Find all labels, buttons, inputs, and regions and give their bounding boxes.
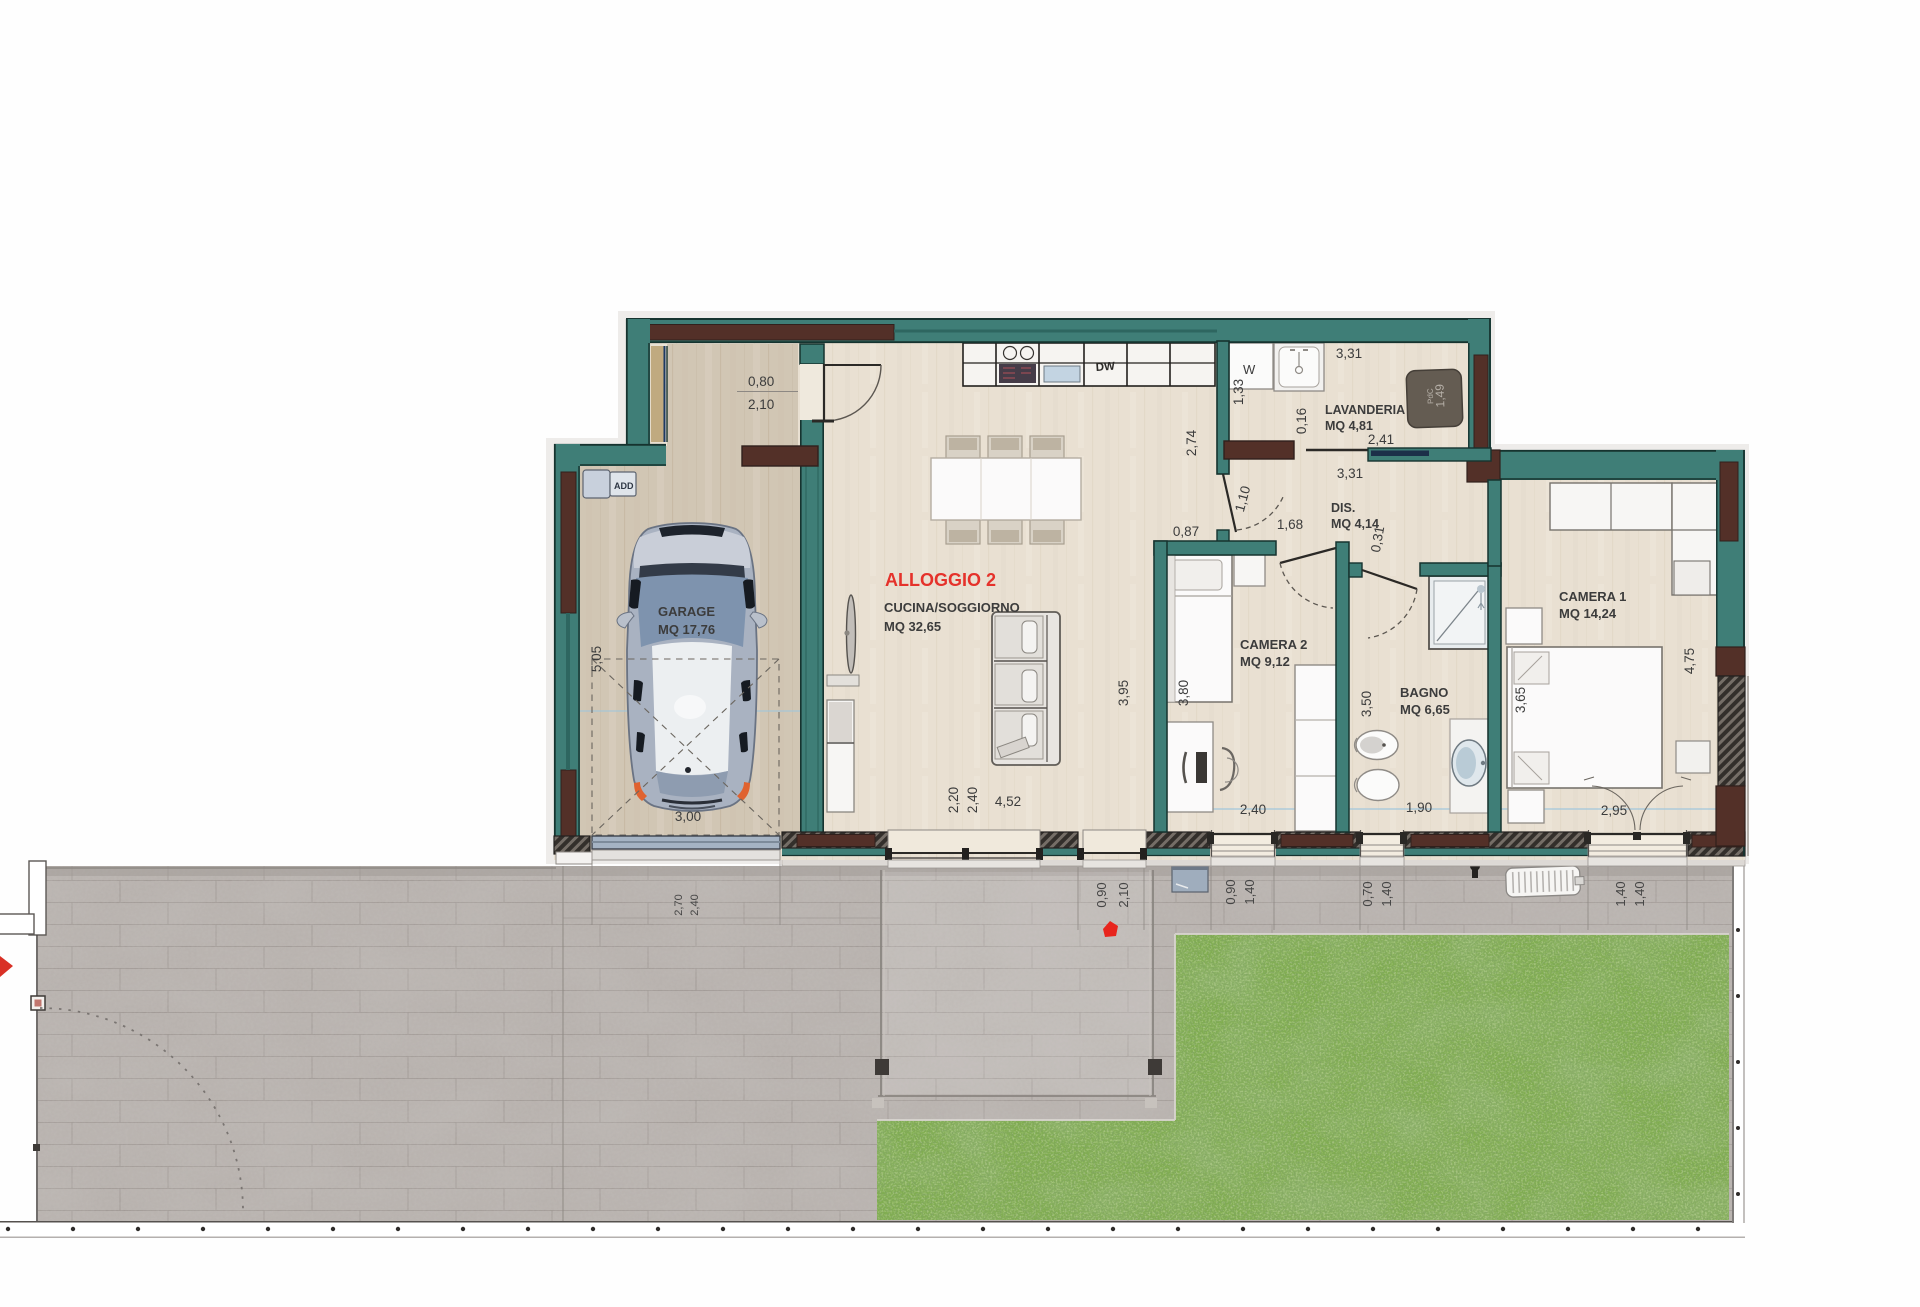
svg-text:0,90: 0,90 (1223, 879, 1238, 904)
svg-text:LAVANDERIA: LAVANDERIA (1325, 403, 1405, 417)
svg-text:MQ 6,65: MQ 6,65 (1400, 702, 1450, 717)
svg-text:0,90: 0,90 (1094, 882, 1109, 907)
svg-text:GARAGE: GARAGE (658, 604, 715, 619)
svg-text:CAMERA 1: CAMERA 1 (1559, 589, 1626, 604)
svg-text:3,31: 3,31 (1337, 466, 1363, 481)
svg-text:1,49: 1,49 (1433, 384, 1448, 408)
svg-text:3,95: 3,95 (1116, 680, 1131, 706)
svg-text:2,40: 2,40 (1240, 802, 1266, 817)
svg-text:2,95: 2,95 (1601, 803, 1627, 818)
svg-text:0,16: 0,16 (1294, 408, 1309, 434)
svg-text:2,40: 2,40 (965, 787, 980, 813)
svg-text:5,05: 5,05 (589, 646, 604, 672)
svg-text:1,33: 1,33 (1231, 379, 1246, 405)
svg-text:MQ 32,65: MQ 32,65 (884, 619, 941, 634)
svg-text:MQ 4,81: MQ 4,81 (1325, 419, 1373, 433)
svg-text:CUCINA/SOGGIORNO: CUCINA/SOGGIORNO (884, 600, 1020, 615)
svg-text:2,74: 2,74 (1184, 429, 1199, 456)
svg-text:2,20: 2,20 (946, 787, 961, 813)
svg-text:0,70: 0,70 (1360, 881, 1375, 906)
svg-text:1,68: 1,68 (1277, 517, 1303, 532)
svg-text:1,40: 1,40 (1613, 881, 1628, 906)
svg-text:1,40: 1,40 (1632, 881, 1647, 906)
svg-text:4,75: 4,75 (1682, 648, 1697, 674)
svg-text:BAGNO: BAGNO (1400, 685, 1448, 700)
svg-text:ALLOGGIO 2: ALLOGGIO 2 (885, 570, 996, 590)
svg-text:DW: DW (1095, 361, 1115, 374)
svg-text:2,41: 2,41 (1368, 432, 1394, 447)
svg-text:3,31: 3,31 (1336, 346, 1362, 361)
svg-text:2,10: 2,10 (1116, 882, 1131, 907)
svg-text:ADD: ADD (614, 481, 634, 491)
svg-text:3,00: 3,00 (675, 809, 701, 824)
svg-text:MQ 9,12: MQ 9,12 (1240, 654, 1290, 669)
svg-text:1,40: 1,40 (1379, 881, 1394, 906)
svg-text:0,80: 0,80 (748, 374, 774, 389)
svg-text:1,40: 1,40 (1242, 879, 1257, 904)
svg-text:MQ 17,76: MQ 17,76 (658, 622, 715, 637)
svg-text:2,70: 2,70 (673, 894, 685, 915)
svg-text:4,52: 4,52 (995, 794, 1021, 809)
svg-text:CAMERA 2: CAMERA 2 (1240, 637, 1307, 652)
svg-text:3,80: 3,80 (1176, 680, 1191, 706)
svg-text:MQ 14,24: MQ 14,24 (1559, 606, 1617, 621)
svg-text:0,87: 0,87 (1173, 524, 1199, 539)
svg-text:1,90: 1,90 (1406, 800, 1432, 815)
svg-text:W: W (1243, 362, 1256, 377)
svg-text:DIS.: DIS. (1331, 501, 1355, 515)
svg-text:3,65: 3,65 (1513, 687, 1528, 713)
svg-text:2,10: 2,10 (748, 397, 774, 412)
svg-text:2,40: 2,40 (689, 894, 701, 915)
svg-text:3,50: 3,50 (1359, 691, 1374, 717)
